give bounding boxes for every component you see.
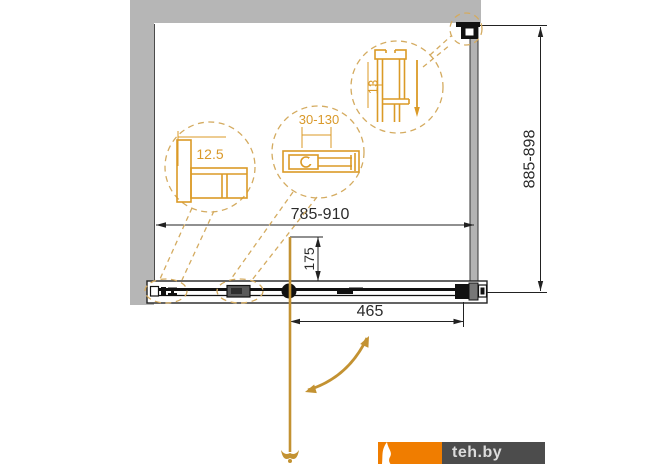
dim-door-width-label: 465 <box>357 303 384 320</box>
detail-wall-profile: 12.5 <box>177 131 247 202</box>
detail-frame-profile: 13 <box>366 47 420 122</box>
detail-adjustment-label: 30-130 <box>299 112 339 127</box>
detail-adjustment-profile: 30-130 <box>283 112 359 172</box>
frame-column <box>470 23 478 282</box>
bar-outline <box>147 281 487 303</box>
left-wall-mount <box>151 287 178 297</box>
right-frame-profile <box>456 22 480 282</box>
watermark-label: teh.by <box>442 442 502 464</box>
dim-height-label: 885-898 <box>522 130 539 189</box>
dimension-handle-offset: 175 <box>290 237 323 281</box>
dimension-door-width: 465 <box>290 302 464 327</box>
dimension-width: 785-910 <box>156 206 474 228</box>
dim-width-label: 785-910 <box>291 206 350 223</box>
detail-frame-label: 13 <box>366 80 381 94</box>
watermark-figure-icon <box>378 442 396 464</box>
technical-drawing: 785-910 885-898 175 465 <box>0 0 670 471</box>
watermark-dark-block: teh.by <box>442 442 545 464</box>
teh-by-watermark: teh.by <box>378 442 545 464</box>
dim-offset-label: 175 <box>301 247 317 271</box>
dimension-height: 885-898 <box>480 26 547 293</box>
door-axis <box>281 237 299 463</box>
right-wall-mount <box>455 283 487 300</box>
corner-bracket-hole <box>466 29 474 36</box>
roller-carriage <box>227 286 250 298</box>
detail-wall-profile-label: 12.5 <box>196 146 223 162</box>
product-diagram-image: 785-910 885-898 175 465 <box>0 0 670 471</box>
wall-top <box>130 0 481 23</box>
wall-left <box>130 0 154 305</box>
door-swing-arrow <box>305 336 369 393</box>
plan-view-bar <box>147 281 487 303</box>
